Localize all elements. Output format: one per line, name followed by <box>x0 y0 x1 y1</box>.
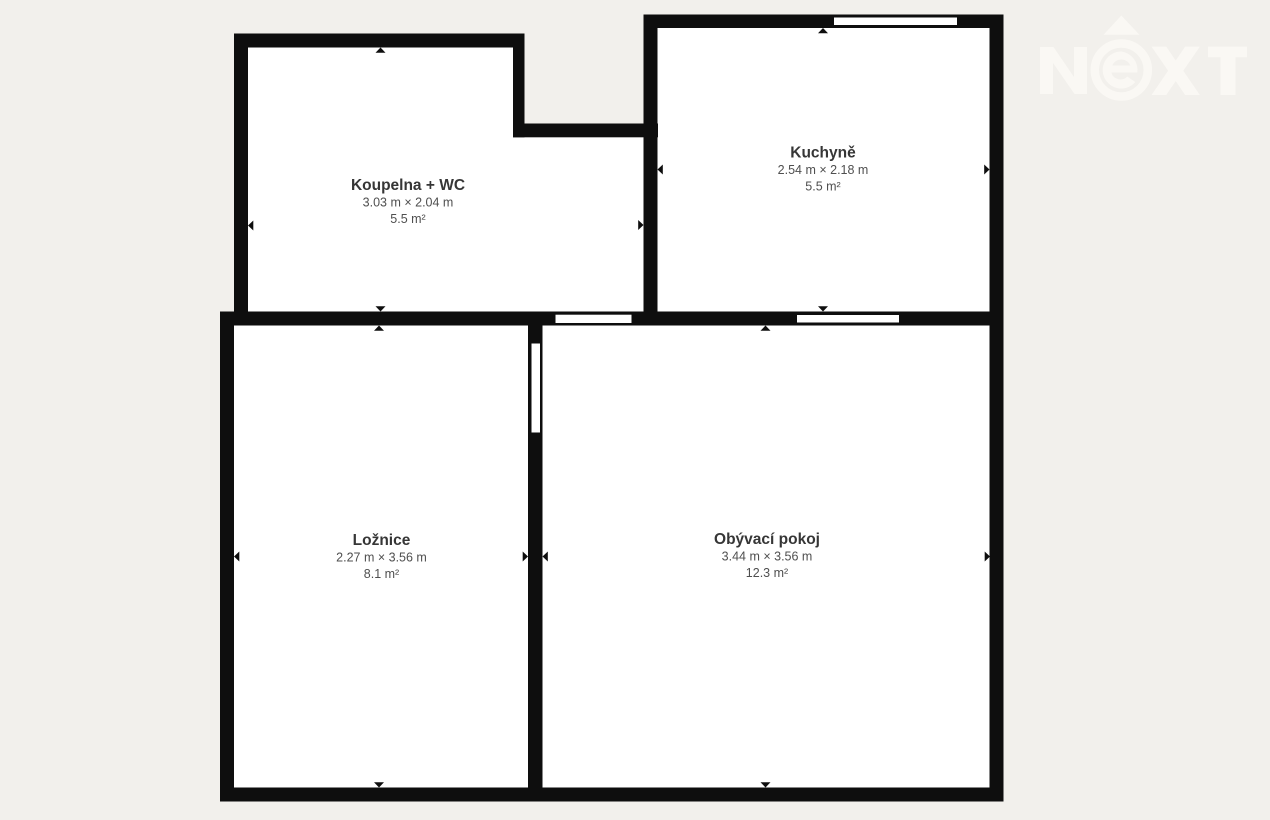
svg-text:Ložnice: Ložnice <box>353 532 411 549</box>
svg-text:Koupelna + WC: Koupelna + WC <box>351 177 465 194</box>
svg-text:12.3 m²: 12.3 m² <box>746 566 788 580</box>
svg-text:3.44 m × 3.56 m: 3.44 m × 3.56 m <box>722 550 813 564</box>
svg-text:5.5 m²: 5.5 m² <box>390 212 425 226</box>
svg-text:8.1 m²: 8.1 m² <box>364 567 399 581</box>
svg-text:Kuchyně: Kuchyně <box>790 145 856 162</box>
svg-text:3.03 m × 2.04 m: 3.03 m × 2.04 m <box>363 196 454 210</box>
svg-text:Obývací pokoj: Obývací pokoj <box>714 531 820 548</box>
svg-text:5.5 m²: 5.5 m² <box>805 180 840 194</box>
svg-text:2.54 m × 2.18 m: 2.54 m × 2.18 m <box>778 163 869 177</box>
svg-text:2.27 m × 3.56 m: 2.27 m × 3.56 m <box>336 551 427 565</box>
